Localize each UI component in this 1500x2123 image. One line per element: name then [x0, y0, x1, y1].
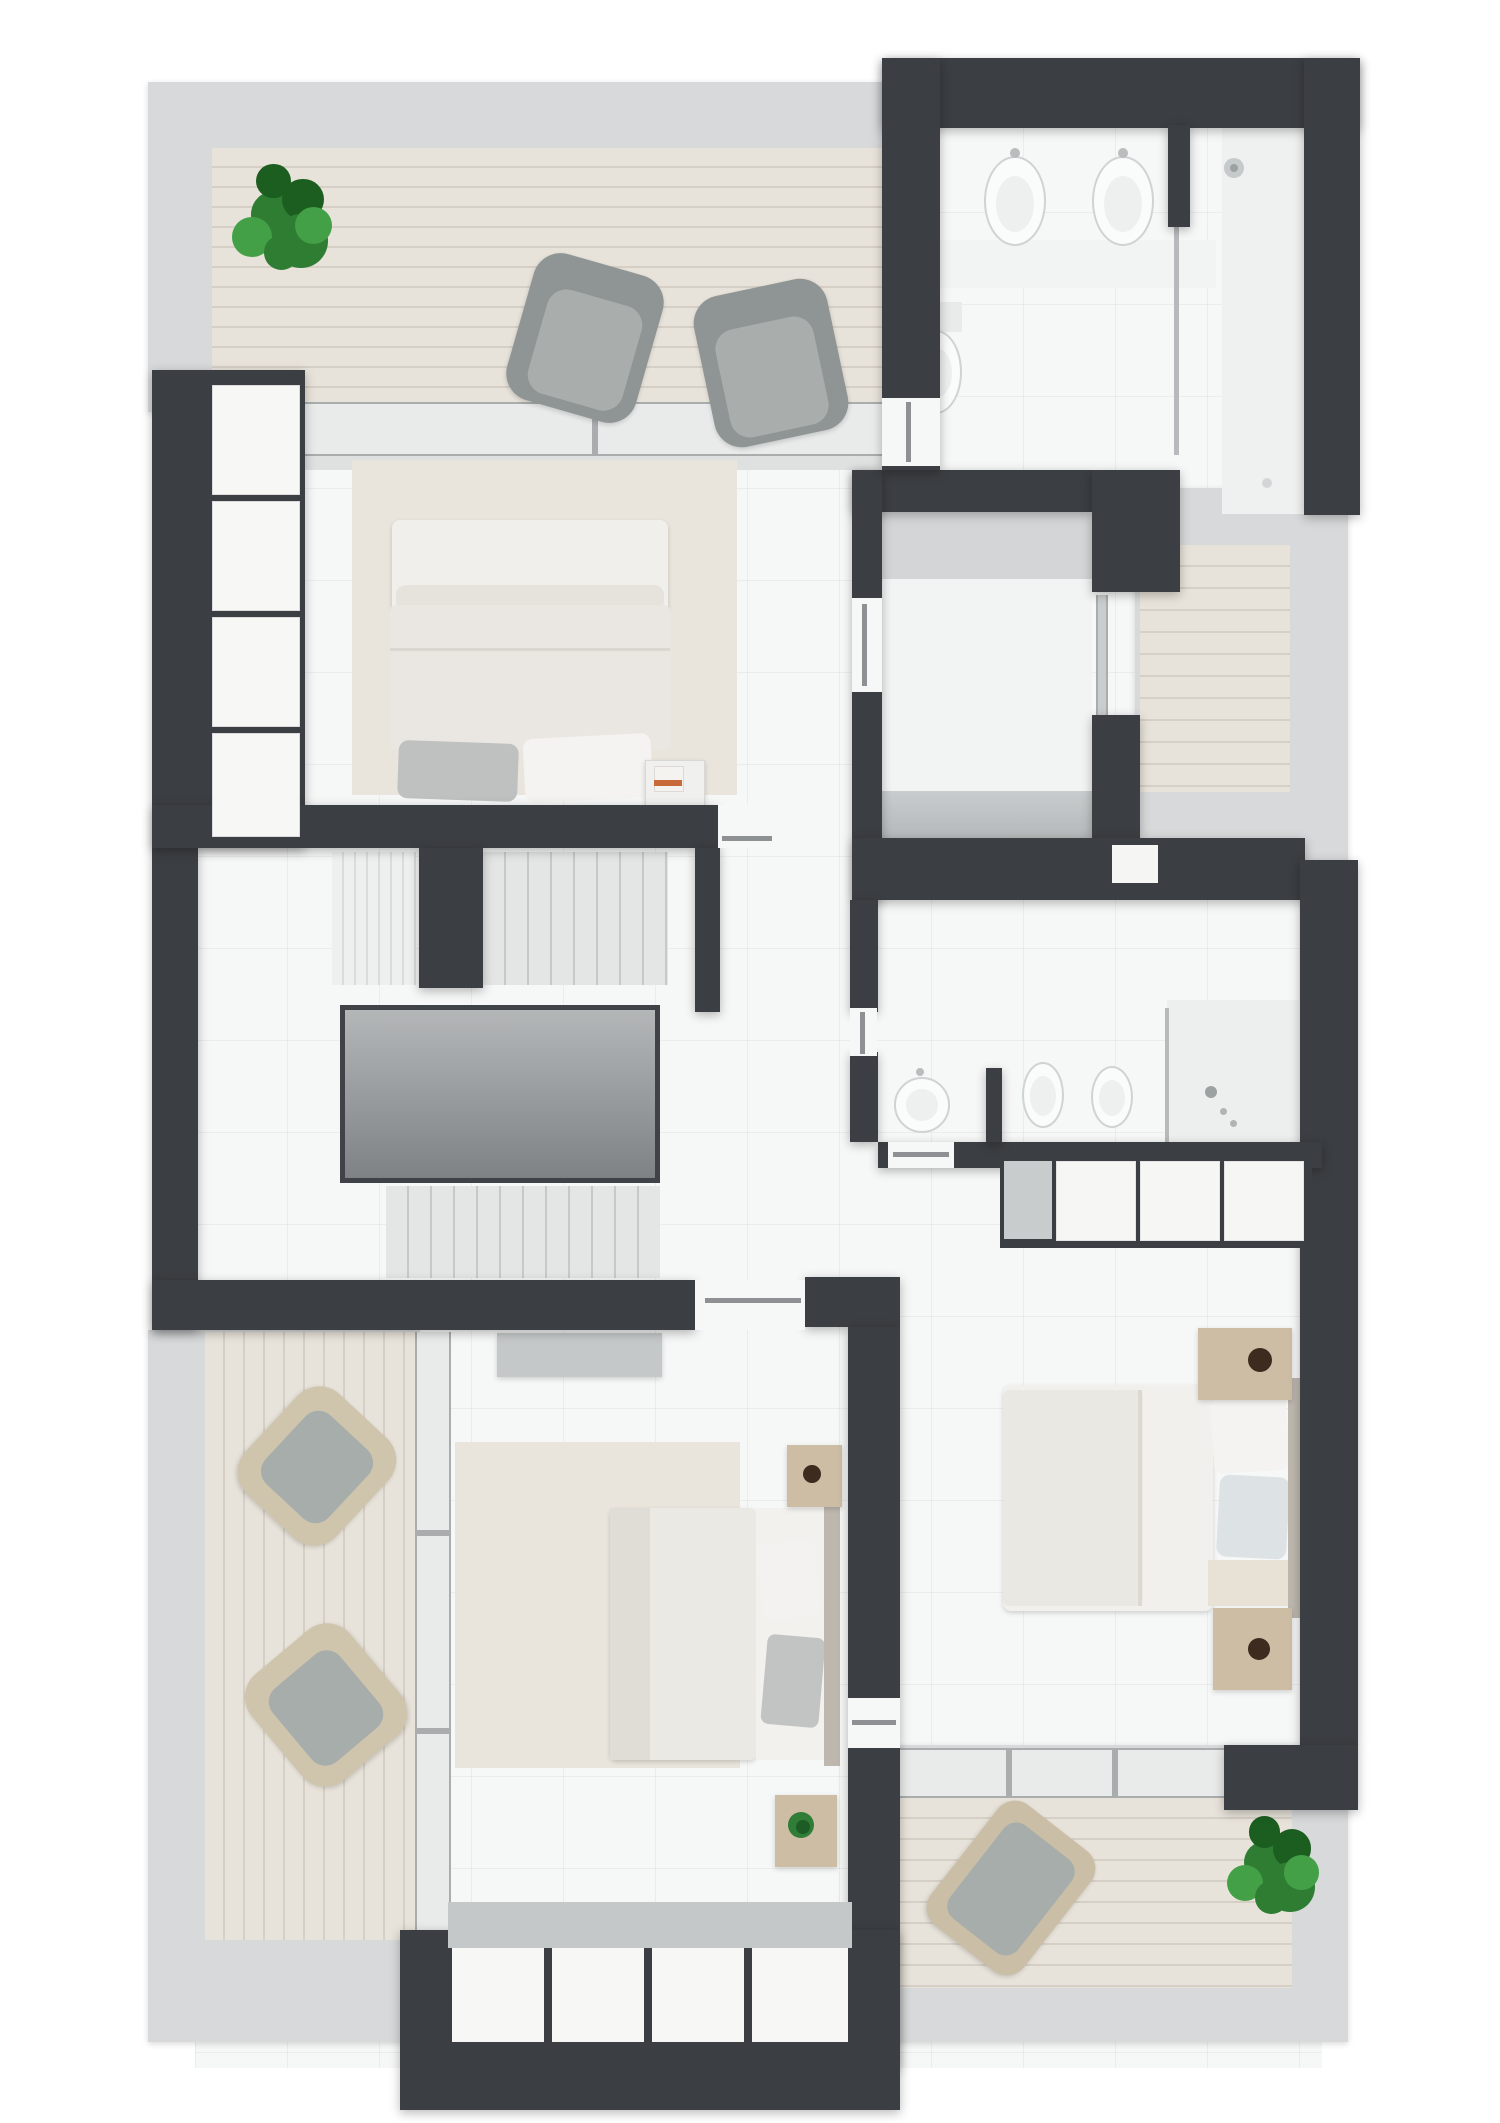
- wardrobe-south-cell-4: [752, 1948, 848, 2042]
- bedroom2-headboard: [824, 1498, 840, 1766]
- wall-bathroom-top-north: [882, 58, 1360, 128]
- bathroom-top-shower-floor: [1222, 128, 1304, 514]
- floorplan-canvas: [0, 0, 1500, 2123]
- bedroom3-bed-duvet: [1003, 1390, 1143, 1606]
- wall-bathroom-top-stub: [1168, 125, 1190, 227]
- wardrobe-master-cell-1: [212, 385, 300, 495]
- wall-stair-south: [152, 1280, 695, 1330]
- bedroom2-west-window: [415, 1332, 451, 1930]
- shower-glass-top: [1174, 225, 1179, 455]
- wardrobe-master-cell-4: [212, 733, 300, 837]
- door-leaf-closet: [862, 604, 867, 686]
- wall-bathroom-right-stub: [986, 1068, 1002, 1142]
- plant-balcony-leaf: [1255, 1881, 1288, 1914]
- plant-balcony-leaf: [1249, 1816, 1281, 1848]
- doorway-bathroom-top: [882, 398, 940, 466]
- wall-closet-bottom: [852, 838, 1305, 900]
- bedroom2-pillow-gray: [760, 1634, 826, 1729]
- sink-right-basin: [1104, 176, 1142, 232]
- shower-drain-top: [1262, 478, 1272, 488]
- master-bed-pillow-white: [522, 733, 653, 804]
- bedroom3-desk-south-stool: [1248, 1638, 1270, 1660]
- wall-bathroom-top-east: [1304, 58, 1360, 515]
- plant-terrace-topleft-leaf: [264, 235, 299, 270]
- master-bed-pillow-gray: [397, 740, 519, 802]
- bedroom2-nightstand-plant-core: [796, 1820, 810, 1834]
- wardrobe-south-front: [448, 1902, 852, 1948]
- master-nightstand-box-stripe: [654, 780, 682, 786]
- doorway-stair-south: [695, 1280, 805, 1330]
- door-leaf-bathroom-right-west: [860, 1012, 865, 1054]
- bedroom2-bed-foot-fold: [610, 1508, 650, 1760]
- wardrobe-master-cell-2: [212, 501, 300, 611]
- bedroom3-desk-north-stool: [1248, 1348, 1272, 1372]
- wardrobe-south-cell-3: [652, 1948, 744, 2042]
- wall-closet-top: [852, 470, 1092, 512]
- sink-left-faucet: [1010, 148, 1020, 158]
- bedroom2-west-window-mullion-1: [415, 1530, 451, 1536]
- wardrobe-north-cell-2: [1140, 1161, 1220, 1241]
- stair-void: [340, 1005, 660, 1183]
- bedroom3-pillow-white: [1209, 1393, 1290, 1474]
- bedroom2-nightstand-north-knob: [803, 1465, 821, 1483]
- bedroom3-bed-duvet-fold: [1138, 1390, 1142, 1606]
- wall-closet-right-upper: [1092, 470, 1180, 592]
- sink-right-faucet: [1118, 148, 1128, 158]
- bedroom3-desk-north: [1198, 1328, 1292, 1400]
- wardrobe-master-cell-3: [212, 617, 300, 727]
- doorway-closet: [852, 598, 882, 692]
- bedroom2-west-window-mullion-2: [415, 1728, 451, 1734]
- bidet-right-seat: [1099, 1080, 1125, 1116]
- wall-bathroom-right-west-lower: [850, 1052, 878, 1142]
- wall-closet-right-lower: [1092, 715, 1140, 838]
- wardrobe-south-cell-2: [552, 1948, 644, 2042]
- door-leaf-master: [722, 836, 772, 841]
- shower-niche: [1112, 845, 1158, 883]
- balcony-north-window-mullion-1: [1006, 1748, 1012, 1798]
- bedroom3-throw: [1208, 1560, 1288, 1606]
- washbasin-right-basin: [906, 1089, 938, 1121]
- bedroom2-bench: [497, 1333, 662, 1377]
- wall-corner-southeast: [1224, 1745, 1358, 1810]
- wall-stair-stub: [419, 848, 483, 988]
- plant-terrace-topleft-leaf: [256, 164, 290, 198]
- plant-balcony-leaf: [1284, 1855, 1319, 1890]
- balcony-north-window: [900, 1748, 1224, 1798]
- wall-hall-stub: [695, 848, 720, 1012]
- wall-bathroom-right-west-upper: [850, 900, 878, 1012]
- wardrobe-north-wedge: [1004, 1161, 1052, 1239]
- door-leaf-balcony: [852, 1720, 896, 1725]
- wall-east-mid: [1300, 860, 1358, 1745]
- wardrobe-north-cell-1: [1056, 1161, 1136, 1241]
- toilet-right-seat: [1030, 1076, 1056, 1116]
- shower-dot-right-1: [1220, 1108, 1227, 1115]
- master-bed-duvet-line: [390, 648, 670, 651]
- closet-floor: [882, 579, 1092, 791]
- shower-head-top-dot: [1230, 164, 1238, 172]
- door-leaf-bathroom-right-south: [893, 1152, 949, 1157]
- bedroom2-pillow-white: [756, 1539, 822, 1621]
- door-leaf-stair-south: [705, 1298, 801, 1303]
- doorway-master: [718, 805, 775, 848]
- plant-balcony: [1215, 1812, 1311, 1908]
- sink-left-basin: [996, 176, 1034, 232]
- closet-east-glass-door: [1096, 595, 1108, 715]
- door-leaf-bathroom-top: [906, 402, 911, 462]
- bathroom-right-glass: [1165, 1008, 1169, 1142]
- stair-lower-flight: [386, 1186, 660, 1278]
- master-bed-duvet: [390, 605, 670, 750]
- wardrobe-north-cell-3: [1224, 1161, 1304, 1241]
- shower-head-right: [1205, 1086, 1217, 1098]
- balcony-north-window-mullion-2: [1112, 1748, 1118, 1798]
- shower-dot-right-2: [1230, 1120, 1237, 1127]
- washbasin-right-faucet: [916, 1068, 924, 1076]
- stair-louver-panels: [332, 852, 416, 985]
- wall-bedroom2-north: [805, 1277, 900, 1327]
- bedroom3-pillow-blue: [1216, 1474, 1290, 1560]
- stair-upper-flight: [483, 852, 668, 985]
- wardrobe-south-cell-1: [452, 1948, 544, 2042]
- wall-stair-west: [152, 848, 198, 1330]
- plant-terrace-topleft: [220, 160, 324, 264]
- master-nightstand-box: [654, 766, 684, 792]
